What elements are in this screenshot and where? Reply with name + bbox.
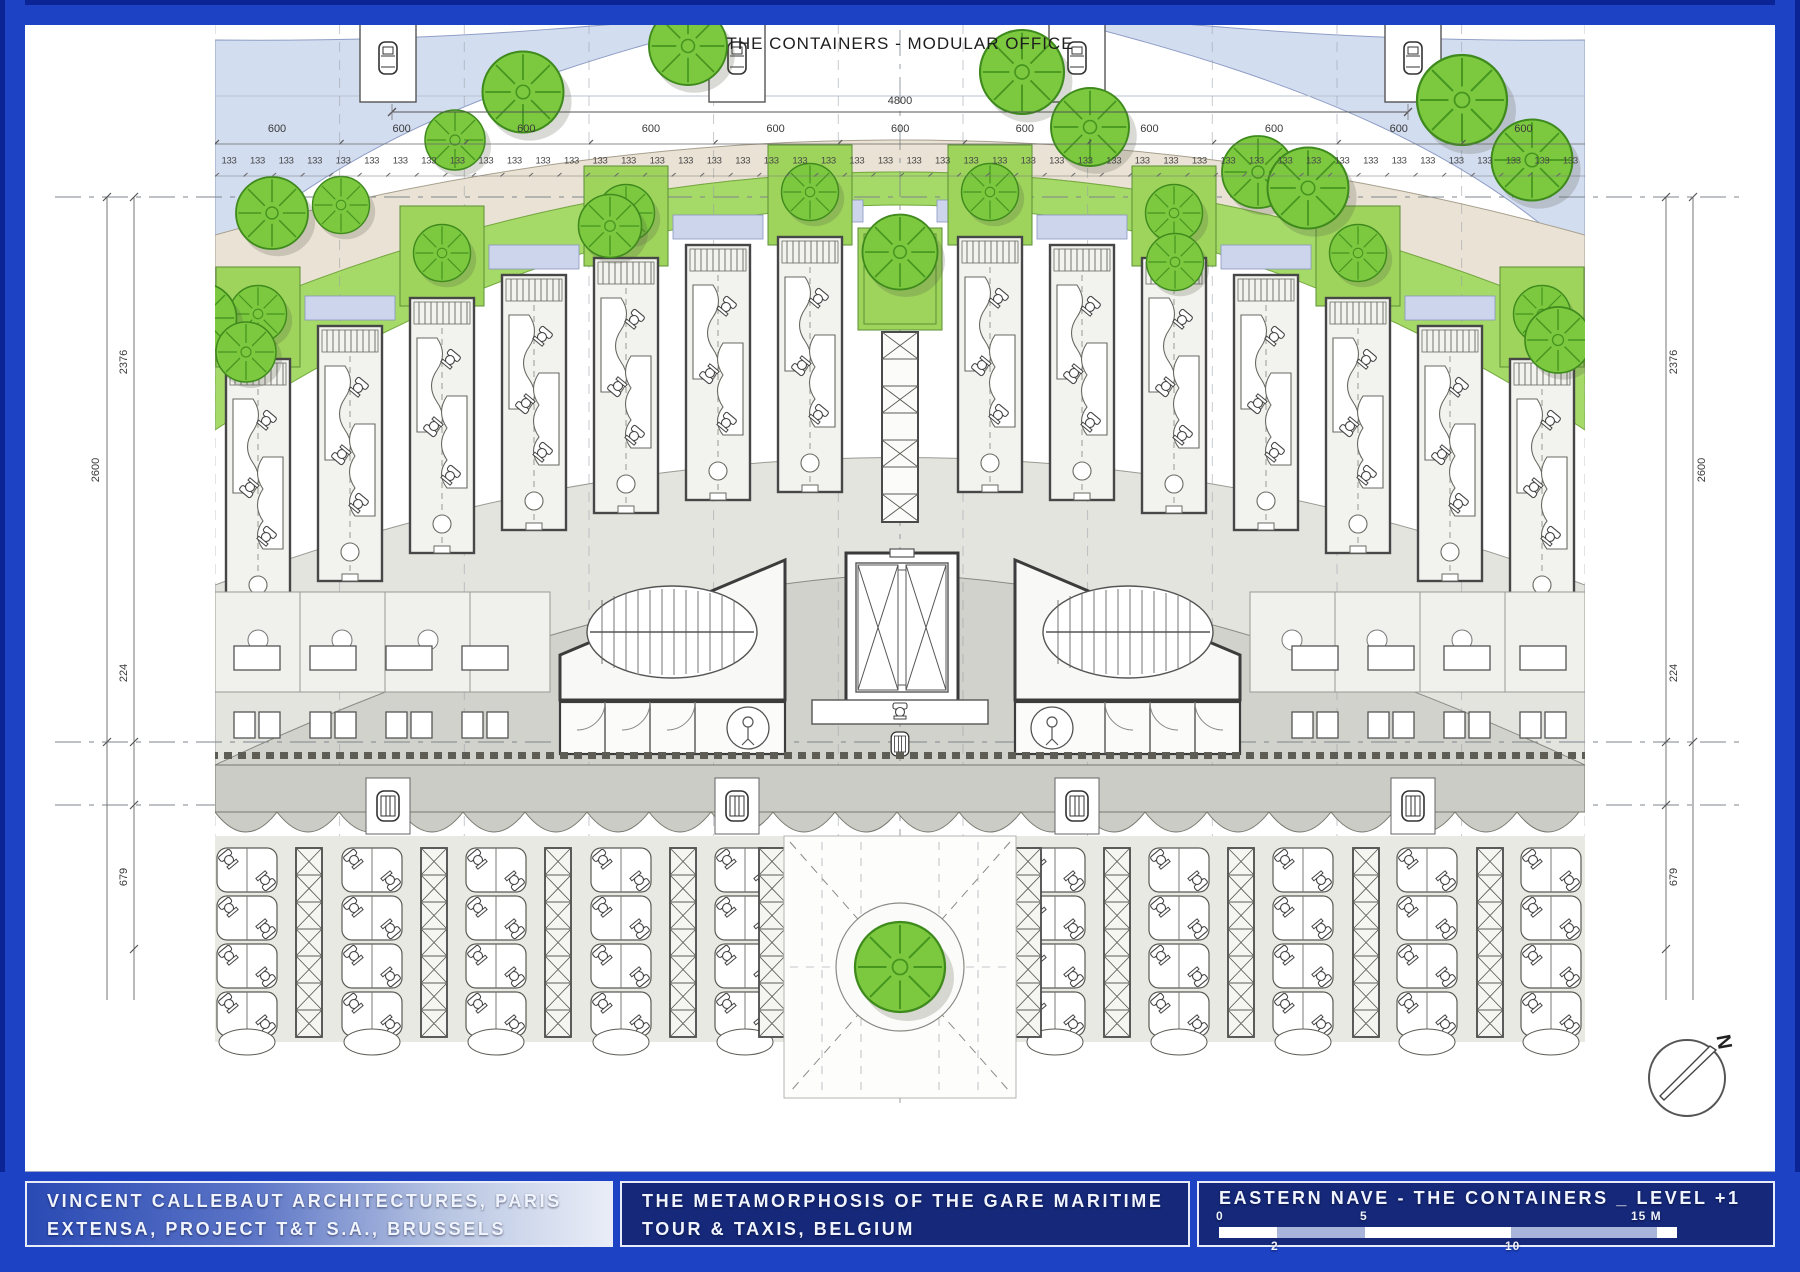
- dim-label-module-133: 133: [279, 156, 294, 167]
- courtyard: [784, 836, 1016, 1098]
- scale-bar-segment: [1657, 1227, 1677, 1238]
- dim-label-module-133: 133: [593, 156, 608, 167]
- vdim-right-2376: 2376: [1668, 350, 1680, 374]
- dim-label-module-133: 133: [964, 156, 979, 167]
- frame-top: [0, 0, 1800, 25]
- dim-label-module-133: 133: [707, 156, 722, 167]
- dim-label-module-133: 133: [507, 156, 522, 167]
- dim-label-module-133: 133: [1392, 156, 1407, 167]
- dim-label-module-133: 133: [1106, 156, 1121, 167]
- dim-label-module-133: 133: [336, 156, 351, 167]
- dim-label-module-133: 133: [421, 156, 436, 167]
- dim-label-module-133: 133: [535, 156, 550, 167]
- elevator-core: [846, 549, 958, 702]
- scale-bar-segment: [1365, 1227, 1511, 1238]
- vdim-left-2600: 2600: [90, 458, 102, 482]
- dim-label-module-133: 133: [450, 156, 465, 167]
- scale-bar-tick: 15 M: [1631, 1209, 1662, 1223]
- dim-label-module-133: 133: [1335, 156, 1350, 167]
- dim-label-bay-600: 600: [268, 123, 286, 135]
- dim-label-module-133: 133: [1249, 156, 1264, 167]
- title-block-architect: VINCENT CALLEBAUT ARCHITECTURES, PARIS E…: [25, 1181, 613, 1247]
- center-module: [858, 215, 945, 331]
- dim-label-module-133: 133: [1078, 156, 1093, 167]
- scale-bar-tick: 0: [1216, 1209, 1224, 1223]
- dim-label-module-133: 133: [935, 156, 950, 167]
- scale-bar-segment: [1219, 1227, 1277, 1238]
- dim-label-module-133: 133: [1135, 156, 1150, 167]
- plan-drawing: [0, 0, 1800, 1272]
- dim-label-module-133: 133: [1363, 156, 1378, 167]
- center-truss: [882, 332, 918, 522]
- frame-left: [0, 0, 25, 1272]
- dim-label-module-133: 133: [478, 156, 493, 167]
- dim-label-module-133: 133: [735, 156, 750, 167]
- dim-label-module-133: 133: [1277, 156, 1292, 167]
- toilet-block-left: [560, 702, 785, 754]
- dim-label-module-133: 133: [621, 156, 636, 167]
- architect-line1: VINCENT CALLEBAUT ARCHITECTURES, PARIS: [47, 1191, 562, 1212]
- dim-label-module-133: 133: [821, 156, 836, 167]
- dim-label-module-133: 133: [1506, 156, 1521, 167]
- title-bar: VINCENT CALLEBAUT ARCHITECTURES, PARIS E…: [0, 1172, 1800, 1272]
- architect-line2: EXTENSA, PROJECT T&T S.A., BRUSSELS: [47, 1219, 506, 1240]
- dim-label-bay-600: 600: [517, 123, 535, 135]
- dim-label-module-133: 133: [792, 156, 807, 167]
- dim-label-module-133: 133: [1220, 156, 1235, 167]
- dim-label-module-133: 133: [250, 156, 265, 167]
- dim-label-module-133: 133: [1420, 156, 1435, 167]
- scale-bar-tick: 2: [1271, 1239, 1279, 1253]
- vdim-right-224: 224: [1668, 664, 1680, 682]
- dim-label-module-133: 133: [764, 156, 779, 167]
- dim-label-bay-600: 600: [891, 123, 909, 135]
- dim-label-bay-600: 600: [392, 123, 410, 135]
- scale-bar-tick: 5: [1360, 1209, 1368, 1223]
- dim-label-module-133: 133: [1021, 156, 1036, 167]
- dim-label-module-133: 133: [650, 156, 665, 167]
- scale-bar-tick: 10: [1505, 1239, 1520, 1253]
- project-line1: THE METAMORPHOSIS OF THE GARE MARITIME: [642, 1191, 1163, 1212]
- frame-right: [1775, 0, 1800, 1272]
- dim-label-module-133: 133: [1049, 156, 1064, 167]
- dim-label-module-133: 133: [1477, 156, 1492, 167]
- toilet-block-right: [1015, 702, 1240, 754]
- dim-label-bay-600: 600: [1140, 123, 1158, 135]
- vdim-left-224: 224: [118, 664, 130, 682]
- vdim-right-2600: 2600: [1696, 458, 1708, 482]
- vdim-left-679: 679: [118, 868, 130, 886]
- dim-label-bay-600: 600: [1514, 123, 1532, 135]
- vdim-right-679: 679: [1668, 868, 1680, 886]
- drawing-title: EASTERN NAVE - THE CONTAINERS _ LEVEL +1: [1219, 1188, 1741, 1209]
- dim-label-module-133: 133: [1192, 156, 1207, 167]
- dim-overall: 4800: [888, 95, 912, 107]
- dim-label-bay-600: 600: [766, 123, 784, 135]
- dim-label-bay-600: 600: [1265, 123, 1283, 135]
- site-label: THE CONTAINERS - MODULAR OFFICE: [726, 34, 1073, 54]
- dim-label-module-133: 133: [1534, 156, 1549, 167]
- dim-label-module-133: 133: [1563, 156, 1578, 167]
- dim-label-module-133: 133: [906, 156, 921, 167]
- dim-label-module-133: 133: [1306, 156, 1321, 167]
- dim-label-bay-600: 600: [1390, 123, 1408, 135]
- dim-label-module-133: 133: [992, 156, 1007, 167]
- scale-bar: [1219, 1227, 1677, 1238]
- scale-bar-segment: [1277, 1227, 1365, 1238]
- dim-label-module-133: 133: [1449, 156, 1464, 167]
- scale-bar-segment: [1511, 1227, 1657, 1238]
- dim-label-module-133: 133: [364, 156, 379, 167]
- dim-label-module-133: 133: [1163, 156, 1178, 167]
- balustrade-strip: [215, 752, 1585, 759]
- dim-label-module-133: 133: [849, 156, 864, 167]
- title-block-project: THE METAMORPHOSIS OF THE GARE MARITIME T…: [620, 1181, 1190, 1247]
- dim-label-module-133: 133: [678, 156, 693, 167]
- dim-label-bay-600: 600: [1016, 123, 1034, 135]
- dim-label-module-133: 133: [393, 156, 408, 167]
- drawing-sheet: THE CONTAINERS - MODULAR OFFICE 4800 600…: [0, 0, 1800, 1272]
- dim-label-module-133: 133: [222, 156, 237, 167]
- title-block-drawing: EASTERN NAVE - THE CONTAINERS _ LEVEL +1…: [1197, 1181, 1775, 1247]
- dim-label-module-133: 133: [564, 156, 579, 167]
- project-line2: TOUR & TAXIS, BELGIUM: [642, 1219, 915, 1240]
- dim-label-module-133: 133: [307, 156, 322, 167]
- vdim-left-2376: 2376: [118, 350, 130, 374]
- dim-label-bay-600: 600: [642, 123, 660, 135]
- dim-label-module-133: 133: [878, 156, 893, 167]
